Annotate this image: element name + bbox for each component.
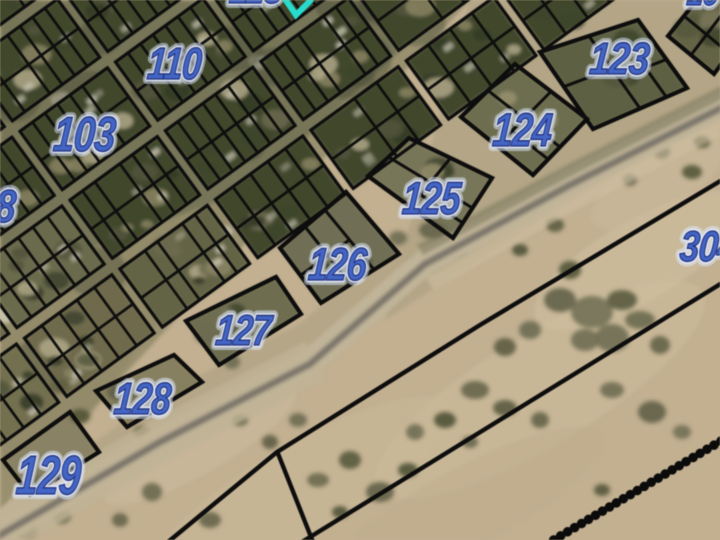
svg-text:129: 129 [14, 446, 83, 507]
svg-text:118: 118 [227, 0, 286, 13]
svg-text:126: 126 [306, 239, 369, 290]
svg-text:110: 110 [145, 38, 204, 89]
svg-text:124: 124 [491, 104, 554, 156]
svg-text:304: 304 [678, 223, 720, 271]
svg-text:128: 128 [112, 373, 174, 424]
svg-text:123: 123 [588, 34, 652, 84]
svg-text:10: 10 [685, 0, 720, 14]
svg-text:103: 103 [51, 108, 117, 163]
svg-text:127: 127 [214, 308, 276, 355]
svg-text:125: 125 [400, 173, 463, 224]
